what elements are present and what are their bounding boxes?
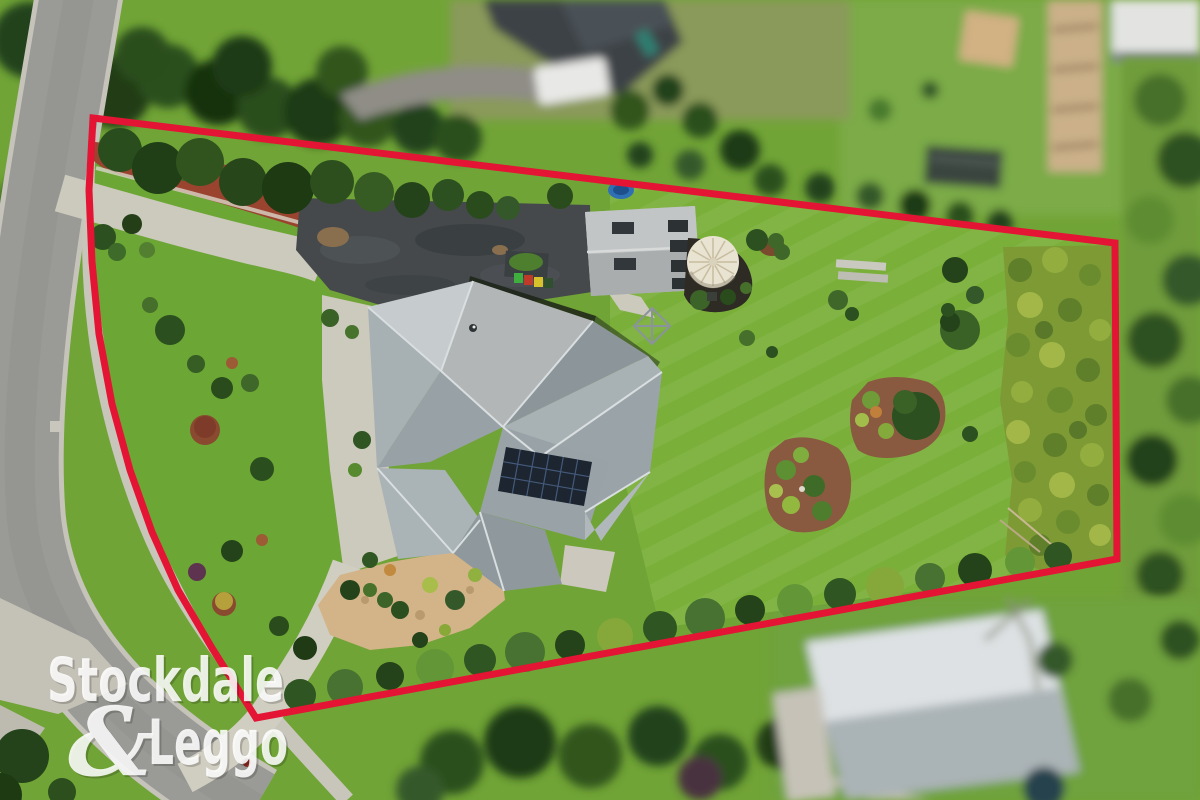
hedge — [1000, 245, 1115, 570]
aerial-property-photo: Stockdale Stockdale & & Leggo Leggo — [0, 0, 1200, 800]
white-building-roof — [1112, 0, 1200, 58]
watermark-line2: Leggo — [148, 706, 288, 779]
watermark-ampersand: & — [68, 687, 154, 798]
maroon-shrub — [678, 756, 722, 800]
garden-bed-a — [764, 437, 851, 532]
dirt-patch — [317, 227, 349, 247]
watermark-logo: Stockdale Stockdale & & Leggo Leggo — [47, 645, 290, 800]
aerial-photo-canvas: Stockdale Stockdale & & Leggo Leggo — [0, 0, 1200, 800]
sand-patch — [959, 10, 1019, 67]
shed — [585, 206, 701, 296]
glasshouse — [924, 145, 1003, 188]
blurred-neighbourhood-right — [1122, 58, 1200, 628]
patio — [560, 545, 615, 592]
